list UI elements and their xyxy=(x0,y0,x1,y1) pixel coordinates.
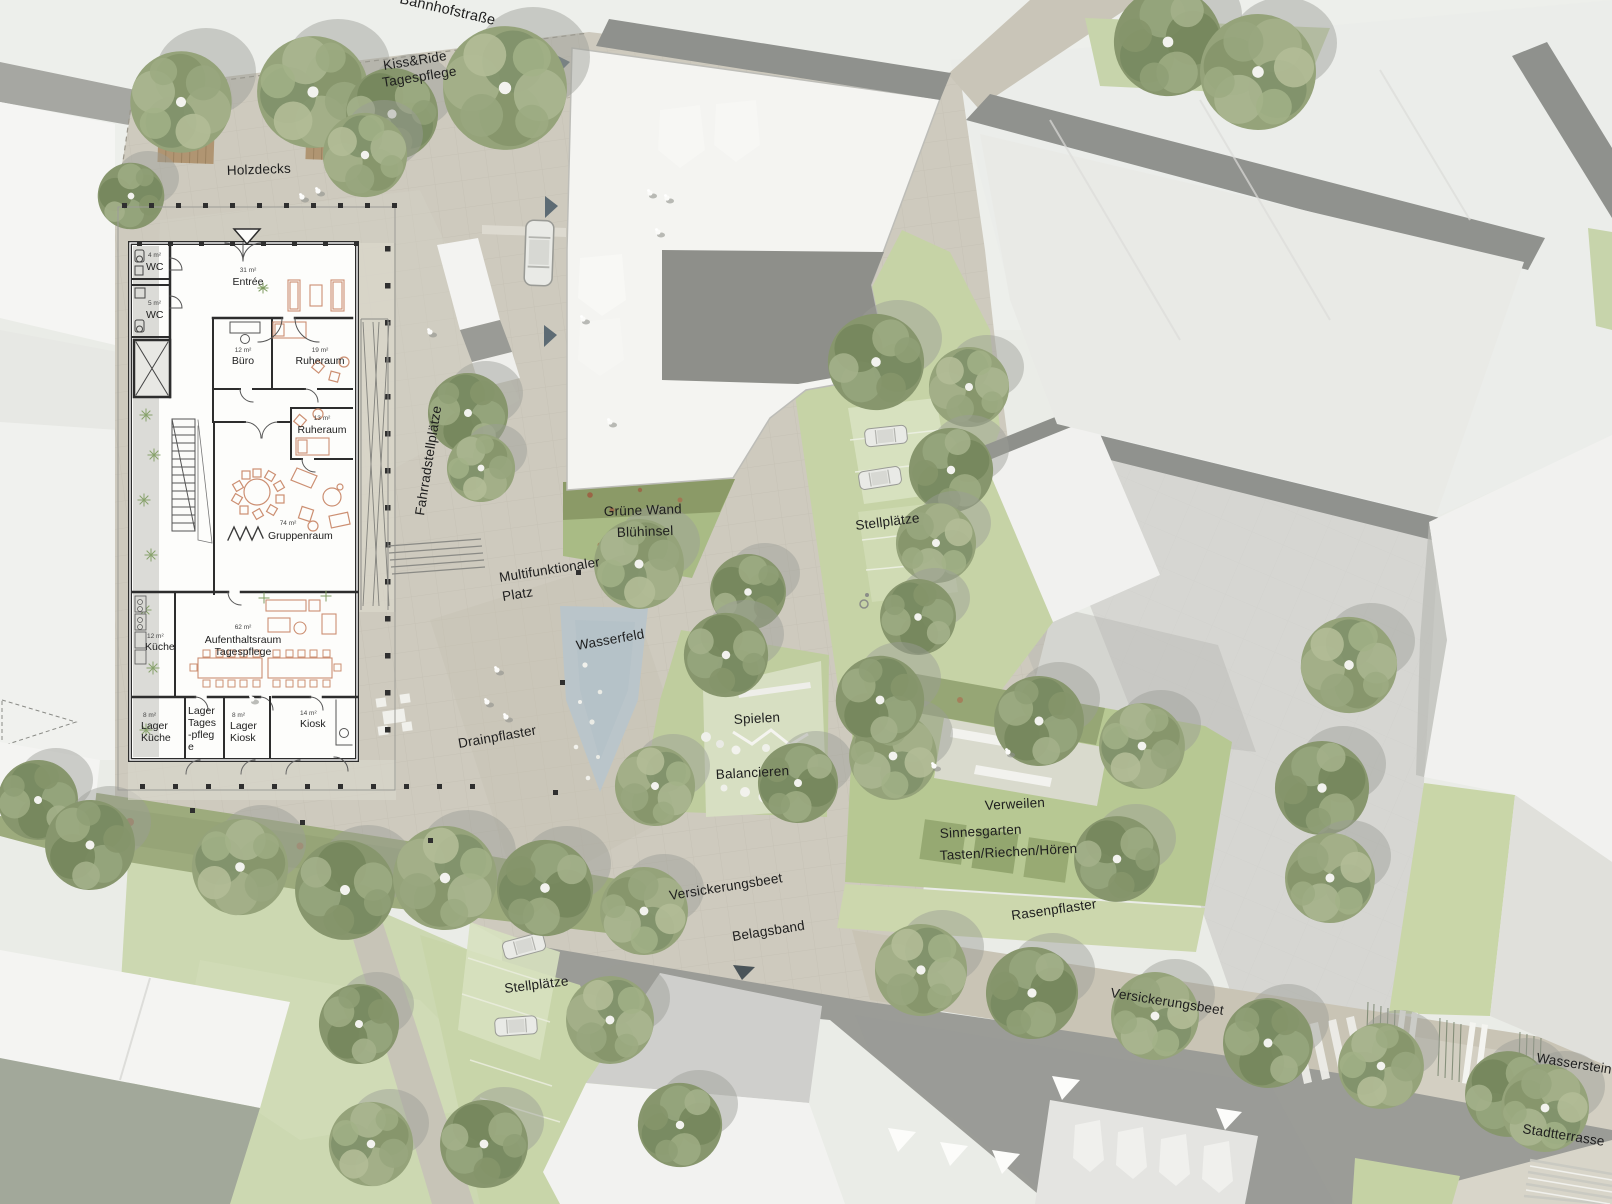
svg-text:Lager: Lager xyxy=(230,720,257,732)
svg-text:WC: WC xyxy=(146,309,164,321)
svg-text:Tagespflege: Tagespflege xyxy=(215,646,272,658)
svg-text:31 m²: 31 m² xyxy=(240,267,257,274)
svg-text:Kiosk: Kiosk xyxy=(300,718,326,730)
svg-text:Spielen: Spielen xyxy=(733,710,780,727)
svg-text:Lager: Lager xyxy=(188,705,215,717)
svg-text:Blühinsel: Blühinsel xyxy=(617,523,674,540)
svg-text:Kiosk: Kiosk xyxy=(230,732,256,744)
svg-text:Büro: Büro xyxy=(232,355,254,367)
svg-text:Gruppenraum: Gruppenraum xyxy=(268,530,333,542)
svg-text:Küche: Küche xyxy=(145,641,175,653)
svg-text:13 m²: 13 m² xyxy=(314,415,331,422)
svg-text:e: e xyxy=(188,741,194,753)
svg-text:4 m²: 4 m² xyxy=(148,252,162,259)
svg-text:Lager: Lager xyxy=(141,720,168,732)
svg-text:-pfleg: -pfleg xyxy=(188,729,214,741)
svg-text:74 m²: 74 m² xyxy=(280,520,297,527)
svg-text:12 m²: 12 m² xyxy=(235,347,252,354)
svg-text:12 m²: 12 m² xyxy=(147,633,164,640)
svg-text:5 m²: 5 m² xyxy=(148,300,162,307)
svg-text:19 m²: 19 m² xyxy=(312,347,329,354)
svg-text:Aufenthaltsraum: Aufenthaltsraum xyxy=(205,634,282,646)
svg-text:14 m²: 14 m² xyxy=(300,710,317,717)
svg-text:Holzdecks: Holzdecks xyxy=(227,161,292,178)
svg-text:8 m²: 8 m² xyxy=(143,712,157,719)
svg-text:Entrée: Entrée xyxy=(233,276,264,288)
svg-text:Küche: Küche xyxy=(141,732,171,744)
svg-text:Grüne Wand: Grüne Wand xyxy=(604,501,683,519)
svg-text:WC: WC xyxy=(146,261,164,273)
svg-text:62 m²: 62 m² xyxy=(235,624,252,631)
svg-text:8 m²: 8 m² xyxy=(232,712,246,719)
svg-text:Tages: Tages xyxy=(188,717,216,729)
svg-text:Ruheraum: Ruheraum xyxy=(295,355,344,367)
svg-text:Verweilen: Verweilen xyxy=(984,795,1045,813)
svg-text:Ruheraum: Ruheraum xyxy=(297,424,346,436)
